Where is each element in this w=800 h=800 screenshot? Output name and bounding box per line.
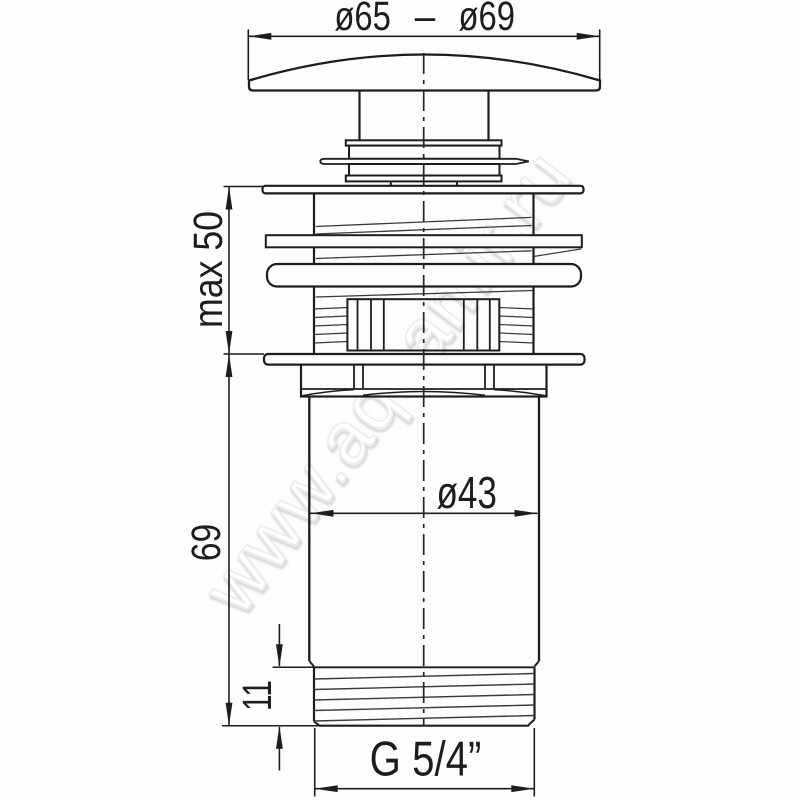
svg-text:–: – (415, 0, 436, 39)
svg-text:G 5/4”: G 5/4” (370, 733, 482, 787)
svg-text:ø69: ø69 (458, 0, 515, 39)
svg-text:max 50: max 50 (185, 211, 231, 328)
svg-text:ø65: ø65 (334, 0, 391, 39)
svg-text:ø43: ø43 (436, 467, 496, 518)
svg-text:11: 11 (234, 680, 280, 711)
svg-text:69: 69 (183, 524, 229, 561)
